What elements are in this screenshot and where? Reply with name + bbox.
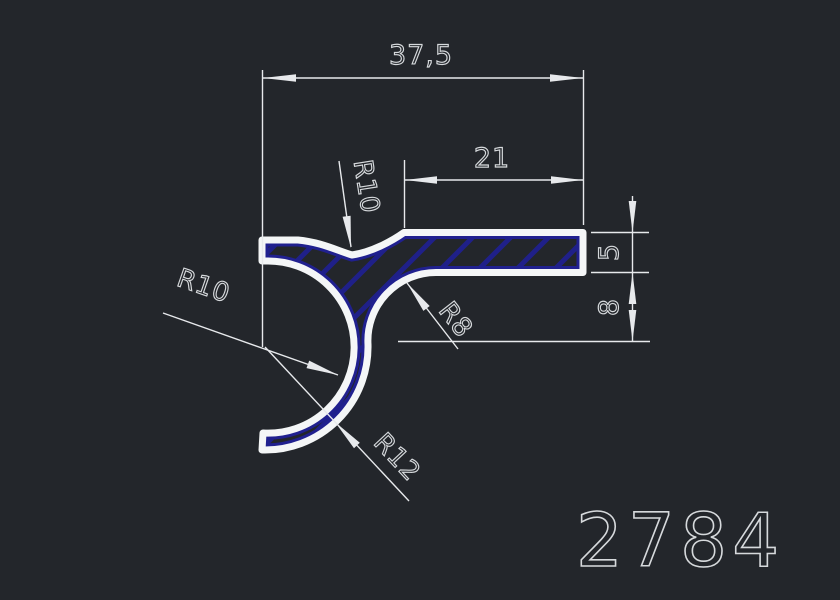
cad-drawing-viewport: 37,5 21 5 8 R10 R10 R8 R12 2784 (0, 0, 840, 600)
cad-drawing-canvas: 37,5 21 5 8 R10 R10 R8 R12 2784 (0, 0, 840, 600)
profile-number: 2784 (576, 498, 784, 584)
dim-notch-depth: 8 (594, 298, 625, 316)
dim-arm-thickness: 5 (594, 243, 625, 261)
dim-overall-width: 37,5 (389, 40, 453, 71)
dim-arm-length: 21 (474, 143, 510, 174)
